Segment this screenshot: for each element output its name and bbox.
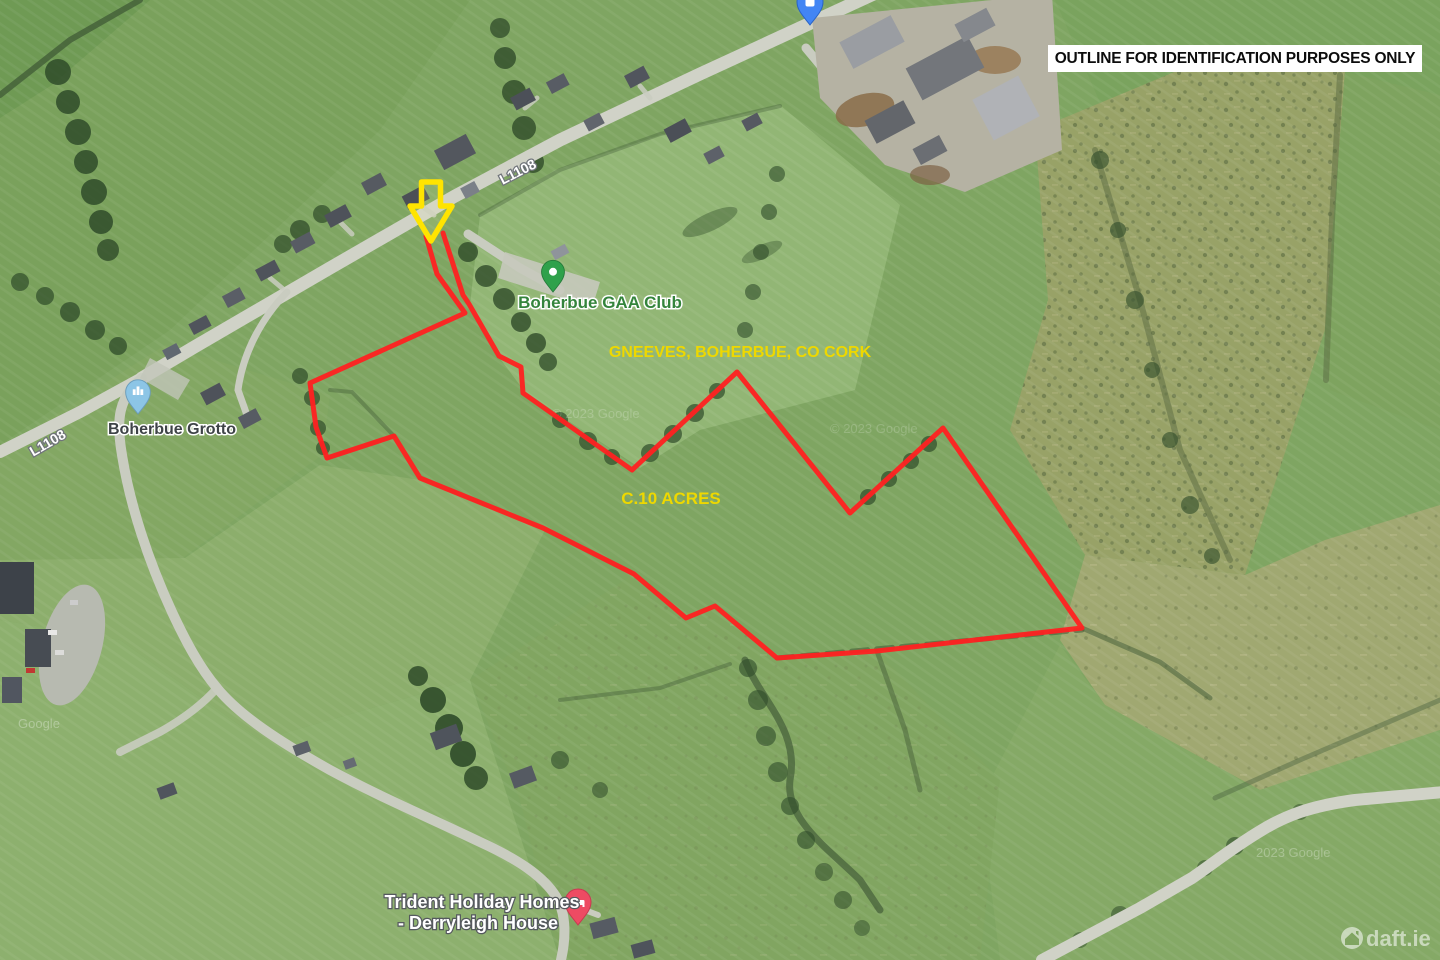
location-label: GNEEVES, BOHERBUE, CO CORK bbox=[609, 344, 872, 361]
disclaimer-text: OUTLINE FOR IDENTIFICATION PURPOSES ONLY bbox=[1055, 50, 1416, 67]
poi-label-trident-line2: - Derryleigh House bbox=[398, 913, 558, 933]
poi-label-grotto: Boherbue Grotto bbox=[108, 421, 236, 438]
attribution-text: Google bbox=[18, 716, 60, 731]
satellite-map[interactable]: © 2023 Google © 2023 Google 2023 Google … bbox=[0, 0, 1440, 960]
area-label: C.10 ACRES bbox=[621, 489, 721, 508]
property-map-screenshot: © 2023 Google © 2023 Google 2023 Google … bbox=[0, 0, 1440, 960]
daft-logo-text: daft.ie bbox=[1366, 926, 1431, 951]
poi-label-gaa-club: Boherbue GAA Club bbox=[518, 293, 682, 312]
attribution-text: © 2023 Google bbox=[830, 421, 918, 436]
disclaimer-banner: OUTLINE FOR IDENTIFICATION PURPOSES ONLY bbox=[1048, 45, 1422, 72]
pin-dot-icon bbox=[549, 268, 557, 276]
store-icon bbox=[806, 0, 815, 7]
poi-label-trident-line1: Trident Holiday Homes bbox=[384, 892, 579, 912]
daft-logo: daft.ie bbox=[1341, 926, 1431, 951]
field-parcels bbox=[0, 0, 1440, 960]
attribution-text: © 2023 Google bbox=[552, 406, 640, 421]
attribution-text: 2023 Google bbox=[1256, 845, 1330, 860]
